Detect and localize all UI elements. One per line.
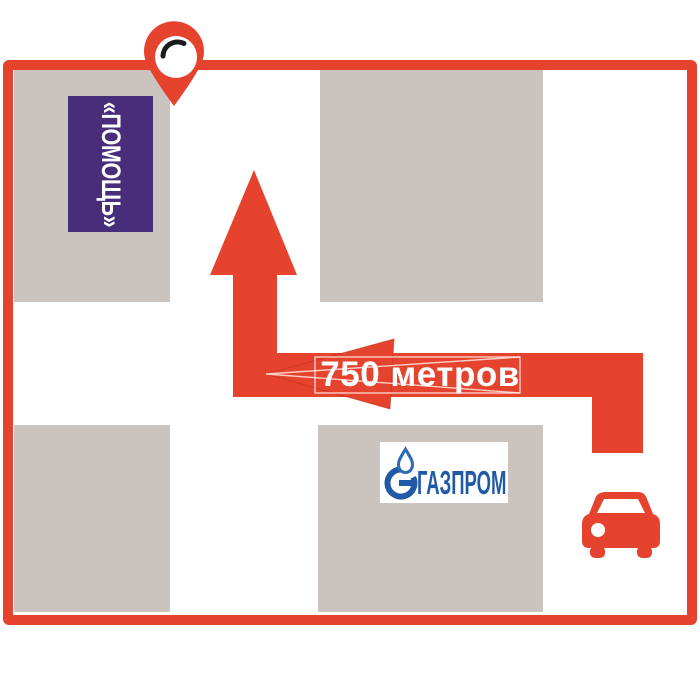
distance-label: 750 метров [300, 353, 540, 397]
pin-highlight-arc [163, 42, 184, 56]
route-map: «ПОМОЩЬ» ГАЗПРОМ [0, 0, 700, 700]
map-border [3, 60, 697, 625]
